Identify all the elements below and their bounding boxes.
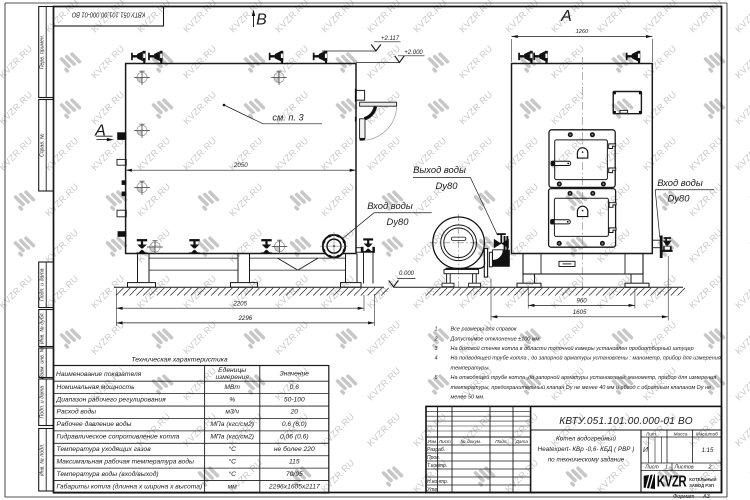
svg-text:МВт: МВт: [224, 384, 240, 391]
svg-text:Температура воды (вход/выход): Температура воды (вход/выход): [57, 470, 159, 478]
svg-text:ЗАВОД РЭП: ЗАВОД РЭП: [689, 483, 714, 488]
svg-text:Н.контр.: Н.контр.: [427, 479, 448, 485]
svg-text:%: %: [229, 396, 235, 403]
svg-text:А3: А3: [702, 494, 710, 500]
svg-text:МПа (кгс/см2): МПа (кгс/см2): [210, 421, 254, 428]
svg-text:2050: 2050: [233, 162, 248, 169]
svg-text:+2.117: +2.117: [381, 36, 400, 42]
svg-text:м3/ч: м3/ч: [225, 409, 239, 416]
svg-text:115: 115: [289, 458, 300, 465]
svg-text:1605: 1605: [573, 309, 587, 316]
svg-text:2: 2: [434, 336, 438, 342]
svg-text:Лит.: Лит.: [645, 431, 657, 436]
svg-text:2205: 2205: [232, 300, 247, 307]
svg-text:2296: 2296: [237, 315, 252, 322]
svg-text:0,6: 0,6: [290, 384, 300, 391]
svg-text:по техническому задание: по техническому задание: [548, 455, 625, 463]
svg-text:МПа (кгс/см2): МПа (кгс/см2): [210, 434, 254, 441]
svg-text:Инв. № дубл.: Инв. № дубл.: [39, 312, 45, 344]
svg-text:Все размеры для справок: Все размеры для справок: [451, 327, 517, 333]
svg-text:№ докум.: № докум.: [461, 439, 482, 444]
svg-text:Номинальная мощность: Номинальная мощность: [57, 384, 136, 391]
svg-text:Подп. и дата: Подп. и дата: [39, 386, 45, 419]
svg-text:Подп. и дата: Подп. и дата: [39, 268, 45, 301]
svg-text:Допустимое отклонение ±100 мм: Допустимое отклонение ±100 мм.: [450, 336, 541, 342]
svg-text:Вход воды: Вход воды: [367, 200, 413, 211]
svg-text:Dy80: Dy80: [436, 180, 459, 191]
svg-text:1260: 1260: [576, 29, 589, 35]
svg-text:Значение: Значение: [280, 370, 310, 377]
svg-text:KVZR: KVZR: [657, 473, 687, 490]
svg-text:0,06 (0,6): 0,06 (0,6): [280, 434, 309, 441]
svg-text:Взам. инв. №: Взам. инв. №: [39, 346, 45, 378]
svg-text:Пров.: Пров.: [427, 455, 440, 461]
svg-text:°С: °С: [228, 470, 236, 478]
svg-text:Масштаб: Масштаб: [696, 431, 718, 436]
svg-text:4: 4: [435, 356, 438, 362]
svg-text:Лист: Лист: [644, 465, 659, 471]
svg-text:°С: °С: [228, 457, 236, 465]
svg-text:Выход воды: Выход воды: [413, 164, 466, 175]
svg-text:+2.000: +2.000: [404, 50, 423, 56]
svg-text:мм: мм: [228, 483, 238, 490]
svg-text:1: 1: [435, 327, 438, 333]
svg-text:1:15: 1:15: [702, 448, 714, 454]
svg-text:А: А: [94, 123, 106, 140]
svg-text:Справ. №: Справ. №: [39, 133, 45, 157]
svg-text:Dy80: Dy80: [387, 216, 410, 227]
svg-text:Наименование показателя: Наименование показателя: [56, 371, 142, 378]
svg-text:На отводящей трубе котла ,до з: На отводящей трубе котла ,до запорной ар…: [451, 374, 717, 381]
svg-text:На боковой стенке котла в обла: На боковой стенке котла в области топочн…: [451, 345, 694, 352]
svg-text:Листов: Листов: [673, 465, 694, 471]
svg-text:1: 1: [665, 465, 668, 471]
svg-text:Гидравлическое сопротивление к: Гидравлическое сопротивление котла: [57, 433, 180, 441]
svg-text:0.000: 0.000: [399, 271, 415, 277]
svg-text:измерения: измерения: [215, 374, 249, 381]
svg-text:2296х1605х2117: 2296х1605х2117: [268, 483, 320, 490]
svg-text:На подводящей трубе котла ,: На подводящей трубе котла , до запорной …: [451, 355, 721, 362]
svg-text:2: 2: [708, 465, 712, 471]
svg-text:960: 960: [576, 298, 587, 305]
svg-text:Расход воды: Расход воды: [57, 408, 97, 416]
svg-text:50-100: 50-100: [284, 396, 305, 403]
svg-text:Подп.: Подп.: [495, 439, 507, 444]
svg-text:Инв. № подл.: Инв. № подл.: [39, 444, 45, 476]
svg-text:Т.контр.: Т.контр.: [427, 463, 447, 469]
svg-text:КВТУ.051.101.00.000-01 ВО: КВТУ.051.101.00.000-01 ВО: [559, 416, 693, 427]
svg-text:КВТУ.051.101.00.000-01 ВО: КВТУ.051.101.00.000-01 ВО: [72, 10, 145, 18]
svg-text:не более 220: не более 220: [274, 445, 315, 453]
svg-text:А: А: [560, 8, 572, 25]
svg-text:Максимальная рабочая температу: Максимальная рабочая температура воды: [57, 457, 195, 465]
svg-text:70/95: 70/95: [286, 471, 303, 478]
svg-text:Формат: Формат: [673, 494, 695, 500]
svg-text:0,6 (6,0): 0,6 (6,0): [282, 421, 307, 428]
svg-text:Утв.: Утв.: [427, 487, 438, 493]
svg-text:Изм: Изм: [427, 439, 436, 444]
svg-text:Масса: Масса: [674, 431, 688, 436]
svg-text:Dy80: Dy80: [668, 192, 691, 203]
svg-text:см. п. 3: см. п. 3: [272, 113, 304, 123]
svg-text:20: 20: [290, 409, 299, 416]
svg-text:Дата: Дата: [515, 439, 529, 444]
svg-text:Вход воды: Вход воды: [657, 177, 703, 188]
svg-text:температуры.: температуры.: [451, 365, 490, 371]
svg-text:°С: °С: [228, 445, 236, 453]
svg-text:менее 50 мм.: менее 50 мм.: [451, 395, 485, 401]
svg-text:температуры, предохранительный: температуры, предохранительный клапан Dy…: [451, 384, 712, 391]
svg-text:Рабочее давление воды: Рабочее давление воды: [57, 420, 132, 428]
svg-text:Heatexpert- КВр -0,6- КБД ( РВ: Heatexpert- КВр -0,6- КБД ( РВР ): [538, 446, 635, 453]
svg-text:Разраб.: Разраб.: [427, 447, 445, 453]
svg-text:Температура уходящих газов: Температура уходящих газов: [57, 445, 152, 453]
svg-text:КОТЕЛЬНЫЙ: КОТЕЛЬНЫЙ: [689, 477, 716, 482]
svg-text:Габариты котла (длинна х ширин: Габариты котла (длинна х ширина х высота…: [57, 482, 203, 490]
svg-text:Котел водогрейный: Котел водогрейный: [556, 435, 616, 443]
svg-text:Диапазон рабочего регулировани: Диапазон рабочего регулирования: [56, 395, 167, 403]
svg-text:Лист: Лист: [438, 439, 451, 444]
svg-text:Перв. примен.: Перв. примен.: [39, 35, 45, 69]
svg-text:Техническая характеристика: Техническая характеристика: [131, 356, 227, 363]
svg-text:В: В: [256, 11, 267, 28]
